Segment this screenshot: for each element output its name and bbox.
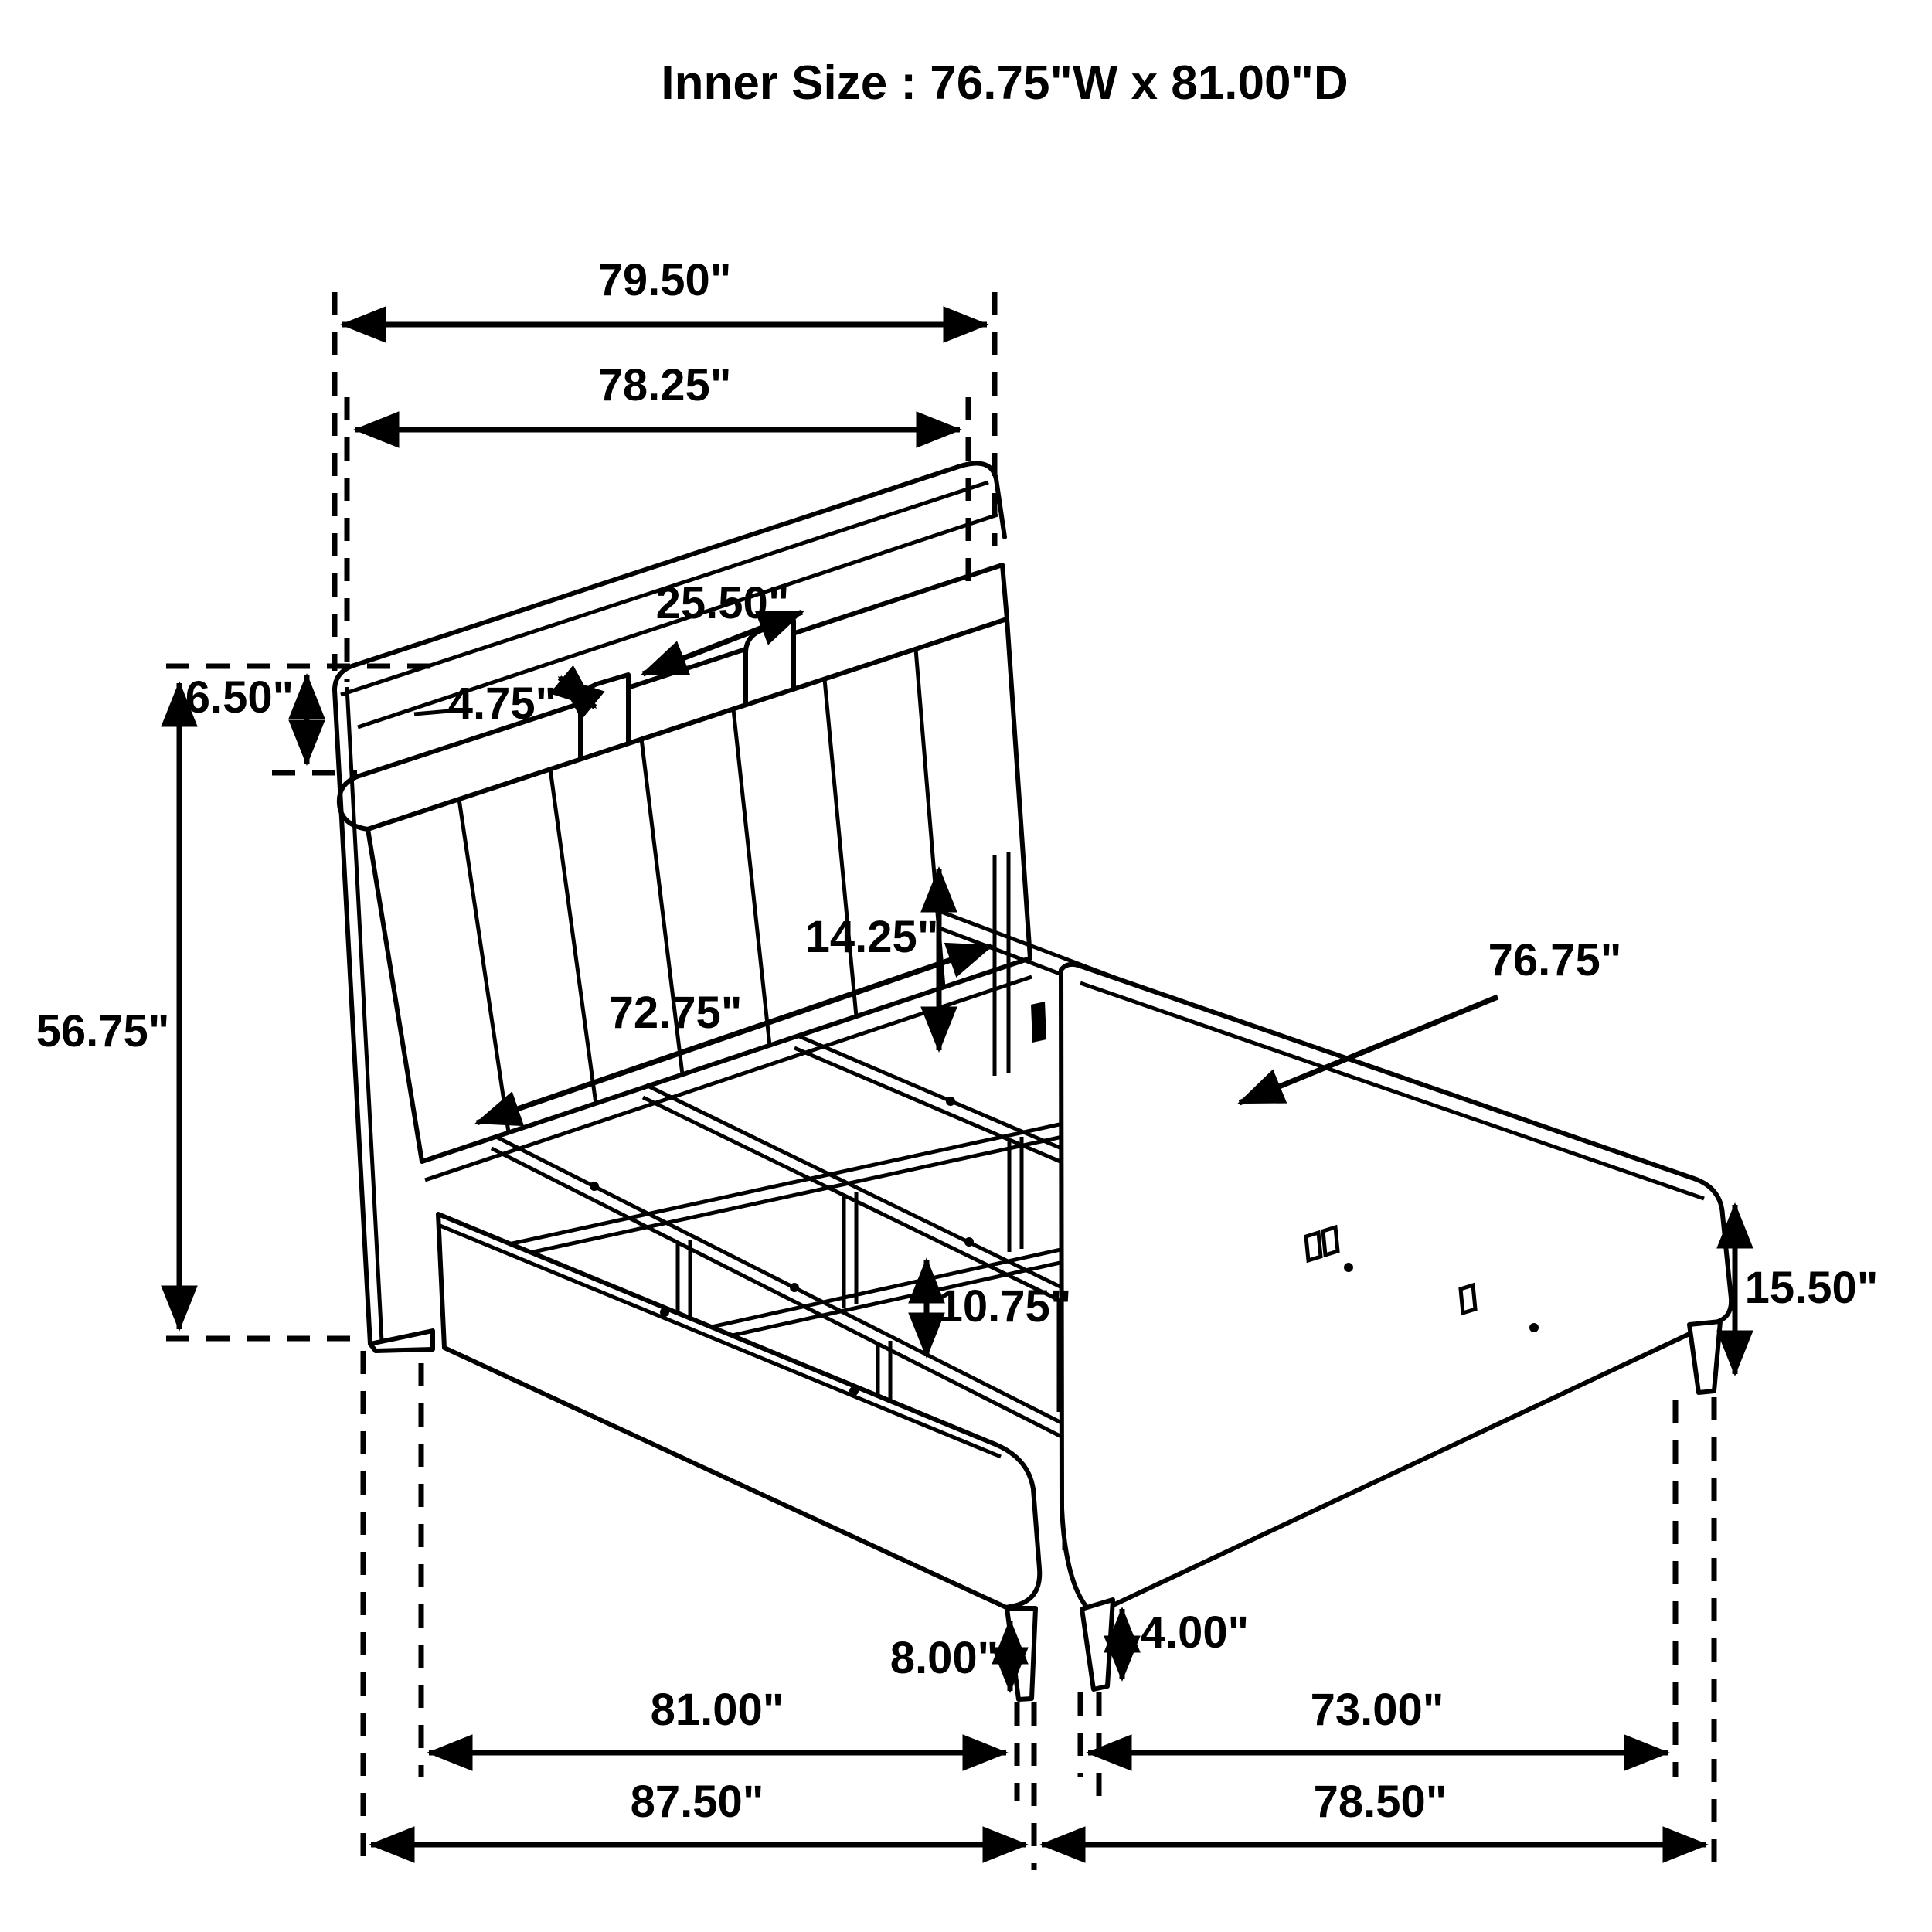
dimension-76-75: 76.75" <box>1240 935 1621 1103</box>
dimension-78-50: 78.50" <box>1042 1777 1706 1845</box>
dim-6-50-label: 6.50" <box>185 672 294 723</box>
dimension-4-00: 4.00" <box>1122 1607 1249 1679</box>
footboard-outer-face <box>1061 964 1731 1614</box>
dimension-15-50: 15.50" <box>1735 1205 1878 1374</box>
rail-mount-bracket <box>1031 1002 1046 1043</box>
dim-73-00-label: 73.00" <box>1311 1685 1444 1735</box>
footboard-right-leg <box>1689 1321 1720 1393</box>
dim-14-25-label: 14.25" <box>805 912 939 962</box>
diagram-title: Inner Size : 76.75"W x 81.00"D <box>661 56 1348 110</box>
dimension-73-00: 73.00" <box>1088 1685 1668 1753</box>
dimension-79-50: 79.50" <box>342 255 987 325</box>
dim-72-75-label: 72.75" <box>609 988 743 1038</box>
dimension-8-00: 8.00" <box>890 1621 1010 1691</box>
dimension-81-00: 81.00" <box>429 1685 1006 1753</box>
dim-56-75-label: 56.75" <box>36 1006 170 1056</box>
dimension-78-25: 78.25" <box>355 360 960 430</box>
dimension-56-75: 56.75" <box>36 683 179 1329</box>
dim-8-00-label: 8.00" <box>890 1633 998 1683</box>
dim-87-50-label: 87.50" <box>631 1777 764 1827</box>
dim-4-75-label: 4.75" <box>448 679 556 729</box>
footboard-front-leg <box>1082 1600 1113 1689</box>
bed-dimension-diagram: Inner Size : 76.75"W x 81.00"D <box>0 0 1932 1932</box>
dimension-4-75: 4.75" <box>414 678 595 729</box>
footboard <box>1061 964 1731 1689</box>
dim-10-75-label: 10.75" <box>938 1281 1072 1332</box>
dim-79-50-label: 79.50" <box>598 255 732 305</box>
diagram-canvas: Inner Size : 76.75"W x 81.00"D <box>0 0 1932 1932</box>
dimension-6-50: 6.50" <box>185 672 307 764</box>
dim-25-50-label: 25.50" <box>656 578 790 628</box>
dim-78-25-label: 78.25" <box>598 360 732 410</box>
dim-81-00-label: 81.00" <box>651 1685 784 1735</box>
dimension-87-50: 87.50" <box>371 1777 1026 1845</box>
dim-15-50-label: 15.50" <box>1745 1263 1879 1313</box>
dim-76-75-label: 76.75" <box>1488 935 1622 985</box>
dim-78-50-label: 78.50" <box>1314 1777 1447 1827</box>
dim-4-00-label: 4.00" <box>1141 1607 1249 1658</box>
